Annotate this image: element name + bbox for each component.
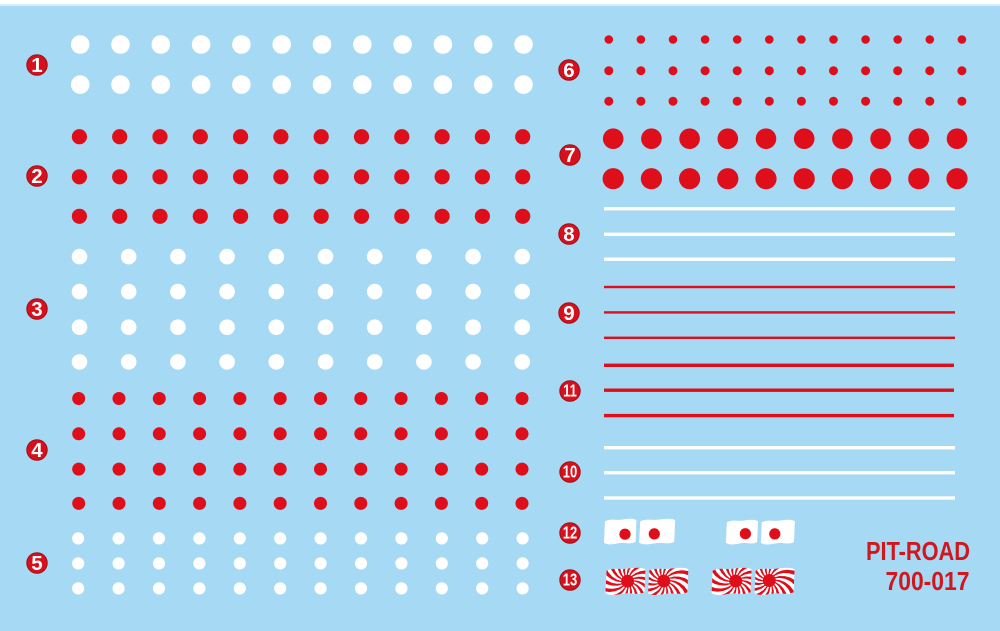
svg-text:2: 2 [31, 165, 42, 188]
svg-text:13: 13 [563, 571, 578, 591]
svg-text:1: 1 [31, 54, 42, 77]
svg-text:7: 7 [564, 144, 575, 167]
svg-text:11: 11 [563, 382, 577, 402]
svg-text:9: 9 [563, 302, 574, 325]
svg-text:6: 6 [563, 59, 574, 82]
svg-text:3: 3 [31, 298, 42, 321]
svg-text:10: 10 [563, 463, 578, 483]
svg-text:5: 5 [31, 552, 42, 575]
svg-text:PIT-ROAD: PIT-ROAD [866, 536, 970, 566]
svg-text:8: 8 [563, 223, 574, 246]
svg-text:700-017: 700-017 [886, 566, 970, 596]
svg-text:4: 4 [31, 439, 43, 462]
svg-text:12: 12 [563, 524, 578, 544]
